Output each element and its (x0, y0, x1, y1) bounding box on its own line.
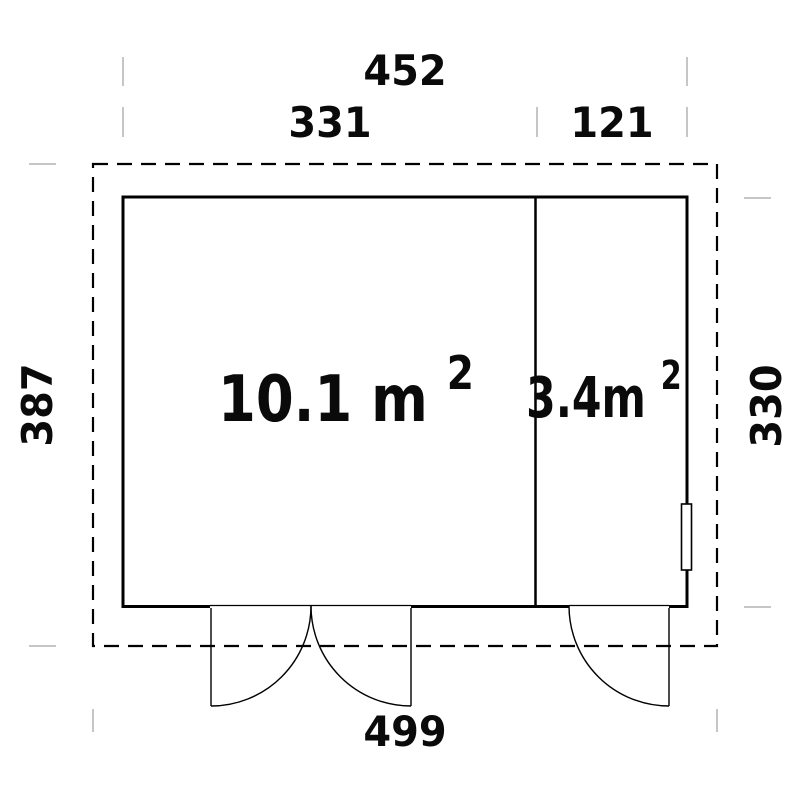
floor-plan-drawing: 452 331 121 387 330 499 10.1 m 2 3.4m 2 (0, 0, 800, 800)
left-dim-label: 387 (13, 363, 62, 446)
floor-plan-page: 452 331 121 387 330 499 10.1 m 2 3.4m 2 (0, 0, 800, 800)
right-dim-label: 330 (742, 364, 791, 447)
room-side-area-label: 3.4m 2 (526, 353, 682, 431)
room-side-area-superscript: 2 (661, 353, 682, 399)
bottom-dim-label: 499 (363, 707, 446, 756)
room-side-area-value: 3.4m (526, 365, 646, 430)
top-dim-right-label: 121 (570, 98, 653, 147)
room-main-area-superscript: 2 (447, 347, 474, 401)
top-dim-total-label: 452 (363, 46, 446, 95)
window-right-wall (682, 504, 692, 570)
top-dim-left-label: 331 (288, 98, 371, 147)
room-main-area-value: 10.1 m (218, 363, 428, 437)
